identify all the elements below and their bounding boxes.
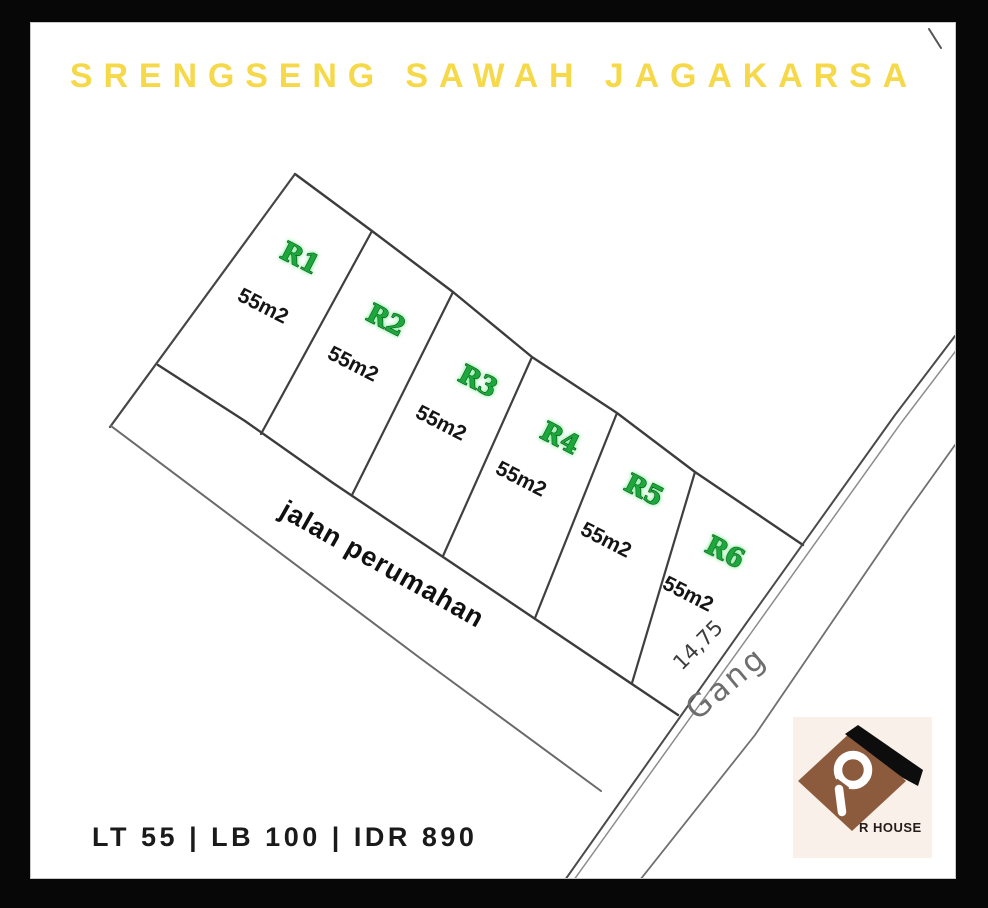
brand-logo: R HOUSE (793, 717, 932, 858)
plot-area-r2: 55m2 (324, 342, 382, 387)
plot-label-r1: R1 (275, 236, 324, 281)
plot-area-r6: 55m2 (659, 572, 717, 617)
plot-label-r4: R4 (535, 416, 584, 461)
plot-label-r2: R2 (361, 298, 410, 343)
plot-area-r1: 55m2 (234, 284, 292, 329)
plot-area-r5: 55m2 (577, 518, 635, 563)
stray-mark (929, 29, 941, 48)
listing-specs: LT 55 | LB 100 | IDR 890 (92, 822, 477, 853)
brand-name: R HOUSE (859, 820, 922, 835)
plot-area-r4: 55m2 (492, 457, 550, 502)
plot-area-r3: 55m2 (412, 401, 470, 446)
plot-label-r6: R6 (700, 530, 749, 575)
plot-label-r3: R3 (453, 359, 502, 404)
plot-label-r5: R5 (619, 468, 668, 513)
brand-logo-mark (793, 717, 932, 858)
